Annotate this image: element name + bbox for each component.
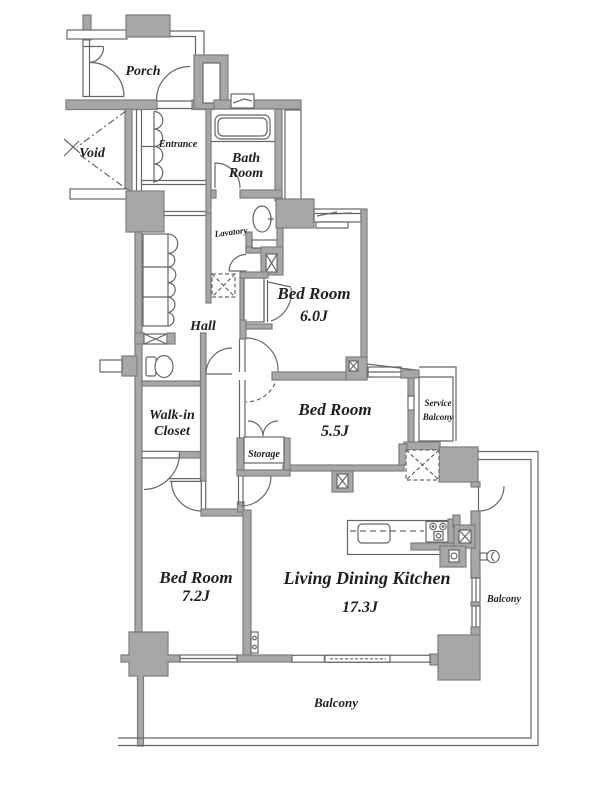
svg-text:Storage: Storage <box>248 449 280 460</box>
svg-text:Walk-in: Walk-in <box>149 408 195 423</box>
svg-text:Bed Room: Bed Room <box>276 284 350 303</box>
svg-text:7.2J: 7.2J <box>182 588 211 605</box>
svg-text:Porch: Porch <box>126 64 161 79</box>
svg-text:Balcony: Balcony <box>486 594 521 605</box>
svg-text:6.0J: 6.0J <box>300 308 329 325</box>
svg-text:Hall: Hall <box>189 319 216 334</box>
svg-text:Entrance: Entrance <box>158 139 198 150</box>
svg-text:Bed Room: Bed Room <box>158 568 232 587</box>
svg-text:Balcony: Balcony <box>422 412 455 422</box>
svg-text:Closet: Closet <box>154 424 191 439</box>
svg-text:Service: Service <box>425 398 452 408</box>
svg-text:Balcony: Balcony <box>313 695 358 710</box>
svg-text:17.3J: 17.3J <box>342 599 379 616</box>
svg-text:Bed Room: Bed Room <box>297 400 371 419</box>
svg-text:Void: Void <box>79 146 106 161</box>
svg-text:Bath: Bath <box>231 151 260 166</box>
svg-text:Room: Room <box>228 166 263 181</box>
svg-text:Living Dining Kitchen: Living Dining Kitchen <box>282 568 450 588</box>
svg-text:5.5J: 5.5J <box>321 423 350 440</box>
